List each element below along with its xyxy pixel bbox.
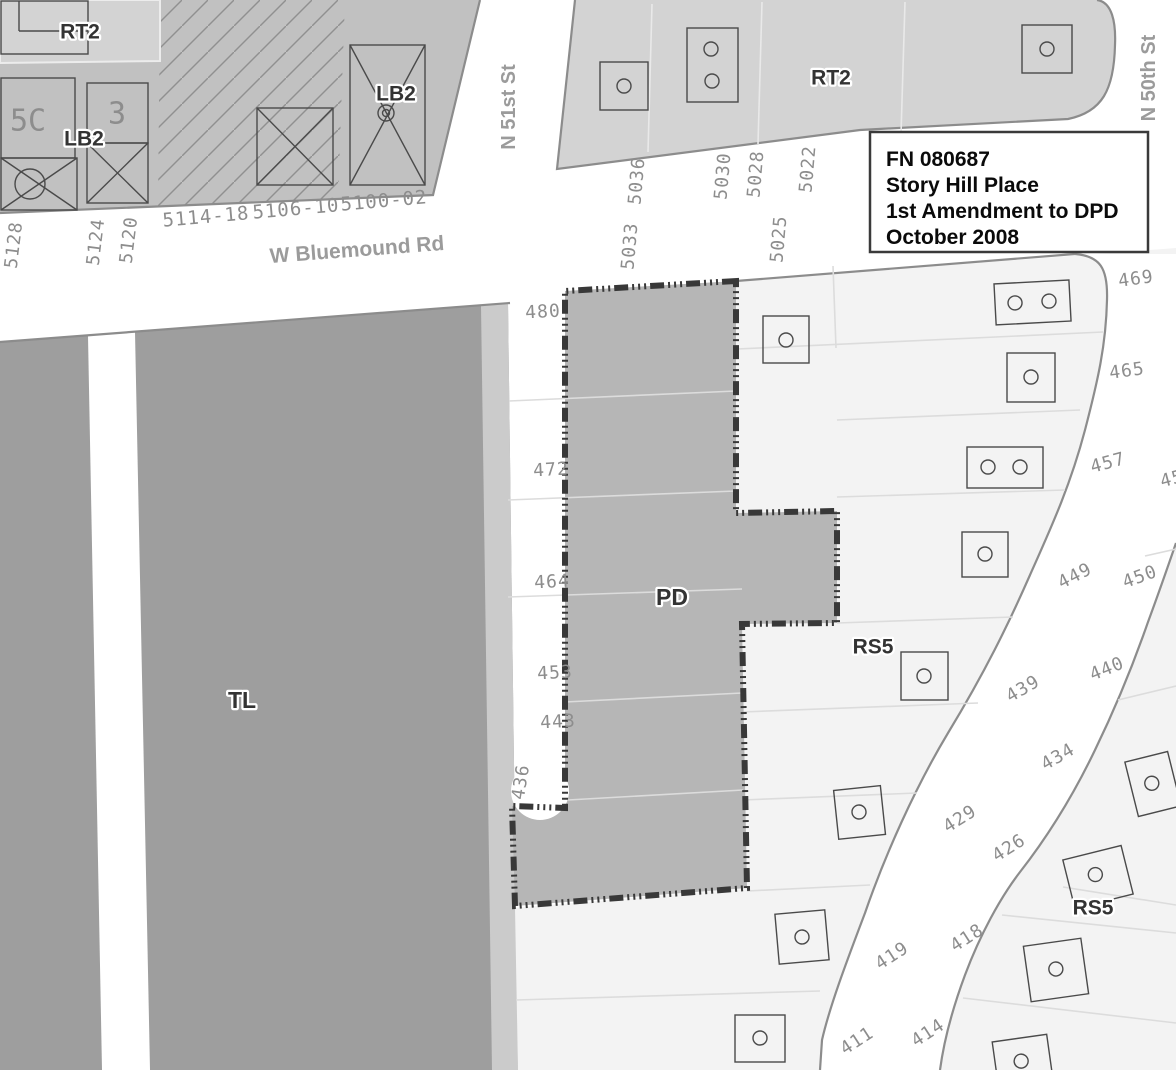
- zoning-map: 5C 3: [0, 0, 1176, 1070]
- lot-number: 453: [537, 662, 574, 685]
- lot-number: 5128: [1, 220, 28, 270]
- lot-number: 5124: [83, 217, 110, 267]
- zone-label-tl: TL: [228, 687, 256, 713]
- building-number-3: 3: [108, 97, 126, 132]
- lot-number: 5030: [710, 151, 735, 200]
- zone-label-lb2-west: LB2: [64, 128, 104, 151]
- zone-label-pd: PD: [656, 584, 688, 610]
- lot-number: 5025: [766, 214, 791, 263]
- lot-number: 480: [525, 301, 562, 324]
- title-line-project-name: Story Hill Place: [886, 174, 1039, 197]
- building-number-5c: 5C: [10, 104, 46, 139]
- lot-number: 5022: [795, 144, 820, 193]
- title-line-amendment: 1st Amendment to DPD: [886, 200, 1119, 223]
- lot-number: 464: [534, 571, 571, 594]
- map-title-box: FN 080687 Story Hill Place 1st Amendment…: [870, 132, 1148, 252]
- lot-number: 5028: [743, 149, 768, 198]
- zone-label-lb2-east: LB2: [376, 83, 416, 106]
- zone-label-rt2-nw: RT2: [60, 21, 100, 44]
- lot-number: 5033: [617, 221, 642, 270]
- zoning-map-canvas: 5C 3: [0, 0, 1176, 1070]
- tl-area-group: [0, 303, 518, 1070]
- title-line-date: October 2008: [886, 226, 1019, 249]
- street-label-50th: N 50th St: [1138, 34, 1160, 121]
- lot-number: 5120: [116, 215, 143, 265]
- lot-number: 472: [533, 459, 570, 482]
- zone-hatched-area: [158, 0, 345, 206]
- street-label-bluemound: W Bluemound Rd: [269, 232, 445, 268]
- zone-tl-area: [0, 303, 518, 1070]
- street-label-51st: N 51st St: [498, 64, 520, 150]
- zone-label-rs5-north: RS5: [853, 636, 894, 659]
- zone-label-rs5-southeast: RS5: [1073, 897, 1114, 920]
- zone-label-rt2-ne: RT2: [811, 67, 851, 90]
- title-line-file-number: FN 080687: [886, 148, 990, 171]
- lot-number: 443: [540, 711, 577, 734]
- lot-number: 5036: [624, 156, 649, 205]
